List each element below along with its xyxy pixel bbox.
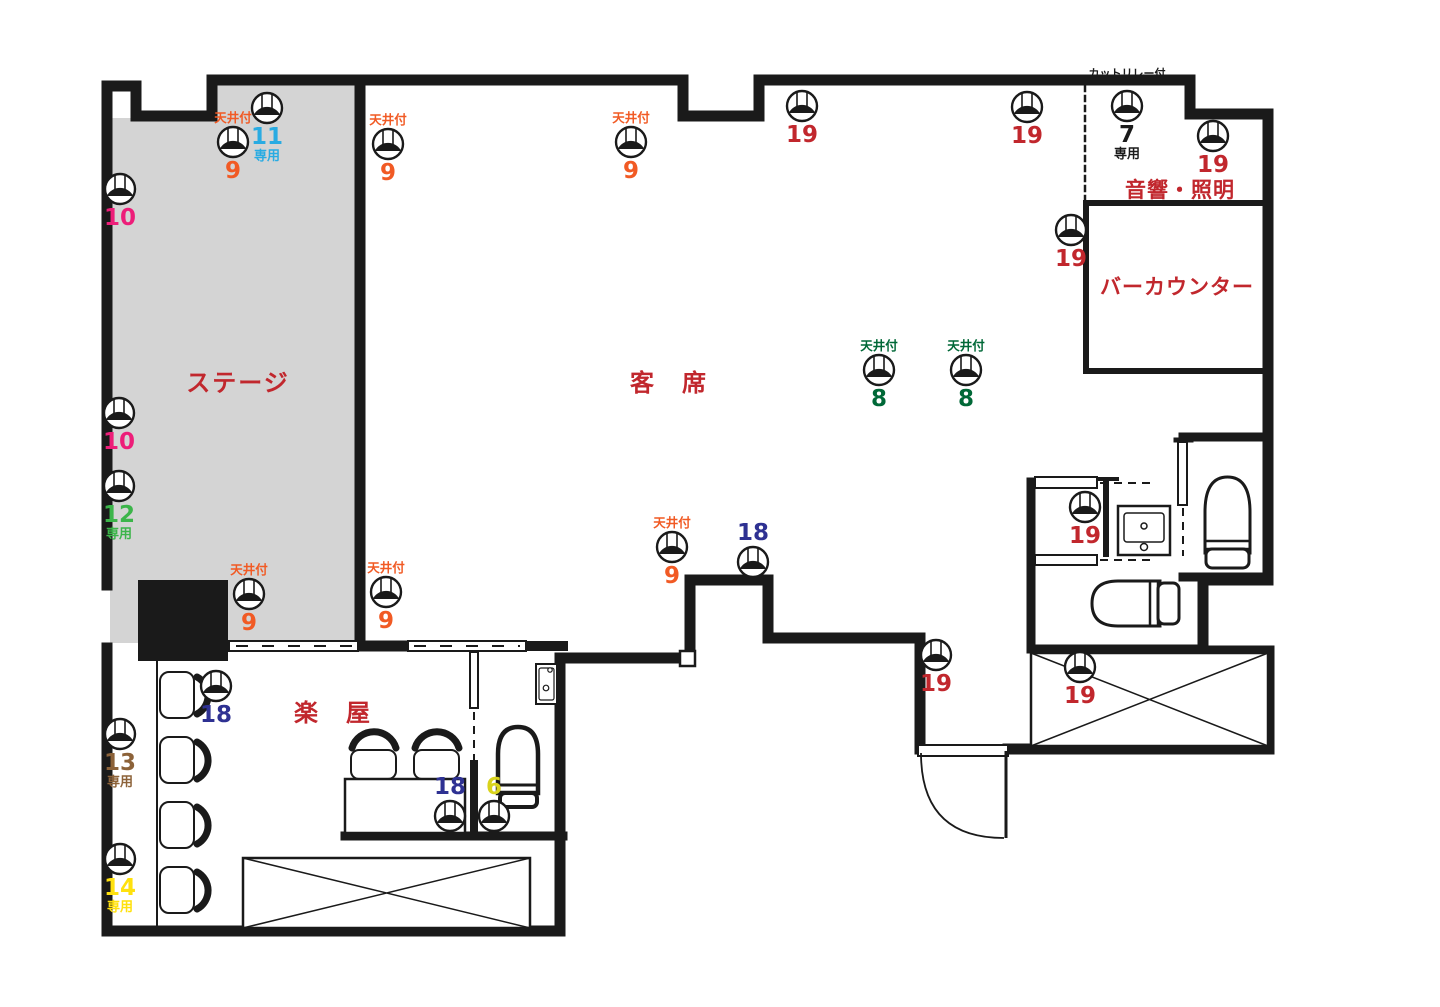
fixture-number: 19 xyxy=(786,122,818,148)
fixture-number: 19 xyxy=(1197,152,1229,178)
toilet-icon-gakuya xyxy=(498,727,538,807)
sink-icon-washroom xyxy=(1118,506,1170,555)
cut-relay-annotation: カットリレー付 xyxy=(1089,66,1166,80)
wall-column xyxy=(680,651,695,666)
fixture-number: 9 xyxy=(225,158,241,184)
fixture-number: 9 xyxy=(664,563,680,589)
fixture-number: 19 xyxy=(920,671,952,697)
chair-icon xyxy=(160,867,208,913)
exclusive-label: 専用 xyxy=(254,148,280,164)
ceiling-mounted-label: 天井付 xyxy=(369,112,407,127)
fixture-number: 7 xyxy=(1119,122,1135,148)
fixture-number: 11 xyxy=(251,124,283,150)
fixture-19: 19 xyxy=(1011,92,1043,149)
ceiling-mounted-label: 天井付 xyxy=(612,110,650,125)
fixture-8: 天井付8 xyxy=(947,338,985,412)
exclusive-label: 専用 xyxy=(107,774,133,790)
ceiling-mounted-label: 天井付 xyxy=(653,515,691,530)
room-label-gakuya: 楽 屋 xyxy=(294,699,372,727)
floor-plan-svg: ステージ 客 席 楽 屋 音響・照明 バーカウンター カットリレー付 11専用天… xyxy=(0,0,1440,1007)
fixture-number: 18 xyxy=(434,774,466,800)
floor-plan: ステージ 客 席 楽 屋 音響・照明 バーカウンター カットリレー付 11専用天… xyxy=(0,0,1440,1007)
washroom-door xyxy=(1035,477,1097,488)
exclusive-label: 専用 xyxy=(107,899,133,915)
door-swing-icon xyxy=(921,751,1006,838)
toilet-icon-lower xyxy=(1092,581,1179,626)
stage-riser xyxy=(138,580,228,661)
fixture-number: 12 xyxy=(103,502,135,528)
fixture-number: 10 xyxy=(103,429,135,455)
sink-icon-gakuya xyxy=(536,664,557,704)
fixture-number: 8 xyxy=(871,386,887,412)
fixture-11: 11専用 xyxy=(251,93,283,164)
fixture-number: 19 xyxy=(1069,523,1101,549)
exclusive-label: 専用 xyxy=(1114,146,1140,162)
door-arc xyxy=(921,753,1004,838)
chair-icon xyxy=(351,732,396,779)
ceiling-mounted-label: 天井付 xyxy=(214,110,252,125)
fixture-9: 天井付9 xyxy=(612,110,650,184)
fixture-number: 19 xyxy=(1011,123,1043,149)
fixture-number: 18 xyxy=(200,702,232,728)
fixture-12: 12専用 xyxy=(103,471,135,542)
fixture-8: 天井付8 xyxy=(860,338,898,412)
chair-icon xyxy=(414,732,459,779)
storage-x-box-left xyxy=(243,858,530,928)
fixture-number: 9 xyxy=(241,610,257,636)
chair-icon xyxy=(160,737,208,783)
toilet-icon-upper xyxy=(1205,477,1250,568)
fixture-9: 天井付9 xyxy=(369,112,407,186)
fixture-number: 10 xyxy=(104,205,136,231)
fixture-19: 19 xyxy=(1055,215,1087,272)
upper-toilet-door xyxy=(1178,442,1187,505)
ceiling-mounted-label: 天井付 xyxy=(367,560,405,575)
fixture-number: 14 xyxy=(104,875,136,901)
room-label-bar-counter: バーカウンター xyxy=(1100,275,1254,299)
fixture-14: 14専用 xyxy=(104,844,136,915)
fixture-number: 18 xyxy=(737,520,769,546)
fixture-19: 19 xyxy=(1197,121,1229,178)
fixture-9: 天井付9 xyxy=(367,560,405,634)
fixture-number: 6 xyxy=(486,774,502,800)
fixture-number: 8 xyxy=(958,386,974,412)
entrance-threshold xyxy=(918,745,1008,756)
fixture-7: 7専用 xyxy=(1112,91,1142,162)
ceiling-mounted-label: 天井付 xyxy=(947,338,985,353)
fixture-19: 19 xyxy=(786,91,818,148)
fixture-number: 13 xyxy=(104,750,136,776)
gakuya-toilet-door xyxy=(470,652,478,708)
fixture-number: 19 xyxy=(1055,246,1087,272)
fixture-19: 19 xyxy=(1069,492,1101,549)
room-label-sound-lighting: 音響・照明 xyxy=(1125,178,1235,202)
fixture-number: 9 xyxy=(623,158,639,184)
ceiling-mounted-label: 天井付 xyxy=(860,338,898,353)
room-label-seats: 客 席 xyxy=(630,369,708,397)
fixture-number: 9 xyxy=(378,608,394,634)
fixture-number: 9 xyxy=(380,160,396,186)
room-label-stage: ステージ xyxy=(186,369,290,397)
fixture-13: 13専用 xyxy=(104,719,136,790)
exclusive-label: 専用 xyxy=(106,526,132,542)
fixture-number: 19 xyxy=(1064,683,1096,709)
lower-toilet-door xyxy=(1035,555,1097,565)
ceiling-mounted-label: 天井付 xyxy=(230,562,268,577)
fixture-18: 18 xyxy=(737,520,769,577)
chair-icon xyxy=(160,802,208,848)
